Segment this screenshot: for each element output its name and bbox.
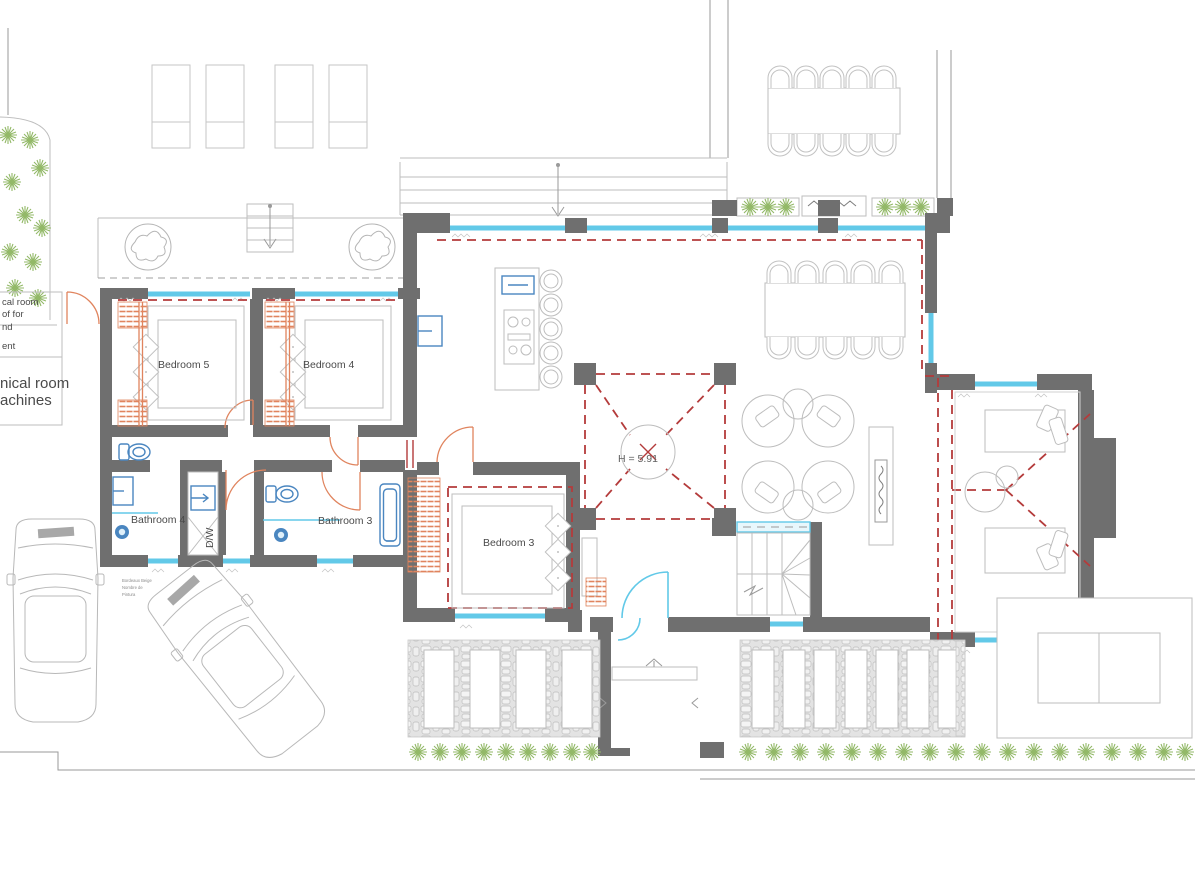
clipped-fragment: ent: [2, 341, 16, 352]
sunbeds: [152, 65, 367, 148]
upper-terrace-steps: [400, 158, 727, 216]
clipped-fragment-large: nical room: [0, 375, 69, 392]
floor-plan-canvas: Bedroom 5 Bedroom 4 Bedroom 3 Bathroom 4…: [0, 0, 1200, 875]
bedroom-terrace: [98, 204, 403, 278]
pergola-left: [408, 640, 600, 737]
room-label-bedroom5: Bedroom 5: [158, 359, 210, 371]
room-label-dw: D/W: [204, 528, 216, 549]
pergola-right: [740, 640, 965, 737]
outdoor-dining-set: [768, 66, 900, 156]
entry-glass-door: [618, 572, 668, 640]
staircase-icon: [737, 533, 810, 615]
suite-room: [955, 392, 1080, 632]
car-icon: [7, 519, 104, 722]
ceiling-height-annotation: H = 5.91: [618, 453, 658, 465]
daybed-bottom: [985, 528, 1069, 573]
bar-stools: [540, 270, 562, 388]
bathtub-icon: [380, 484, 400, 546]
dining-table-indoor: [765, 261, 905, 359]
kitchen: [418, 268, 562, 390]
lounge-seating: [742, 389, 854, 520]
car-icon: [137, 550, 338, 770]
clipped-fragment: cal room: [2, 297, 39, 308]
clipped-fragment: of for: [2, 309, 24, 320]
toilet-icon: [119, 444, 150, 460]
material-note-line: Nombre de: [122, 585, 143, 590]
entrance-porch: [600, 659, 698, 708]
clipped-fragment-large: achines: [0, 392, 52, 409]
fireplace-icon: [869, 427, 893, 545]
terrace-steps: [247, 204, 293, 252]
room-label-bedroom4: Bedroom 4: [303, 359, 355, 371]
floor-drain-icon: [115, 525, 129, 539]
northwest-planting-bed: [0, 117, 51, 320]
hedges: [409, 743, 1194, 761]
toilet-icon: [266, 486, 298, 502]
stair-glass-rail: [737, 522, 810, 532]
material-note-line: Bordeaux Beige: [122, 578, 152, 583]
room-label-bedroom3: Bedroom 3: [483, 537, 535, 549]
daybed-top: [985, 404, 1069, 452]
dishwasher-icon: [191, 486, 215, 510]
room-label-bathroom4: Bathroom 4: [131, 514, 185, 526]
material-note-line: Pintura: [122, 592, 136, 597]
room-label-bathroom3: Bathroom 3: [318, 515, 372, 527]
clipped-fragment: nd: [2, 322, 13, 333]
sink-icon: [113, 477, 133, 505]
wall-window-blue: [418, 316, 442, 346]
floor-drain-icon: [274, 528, 288, 542]
southeast-terrace: [956, 598, 1192, 738]
